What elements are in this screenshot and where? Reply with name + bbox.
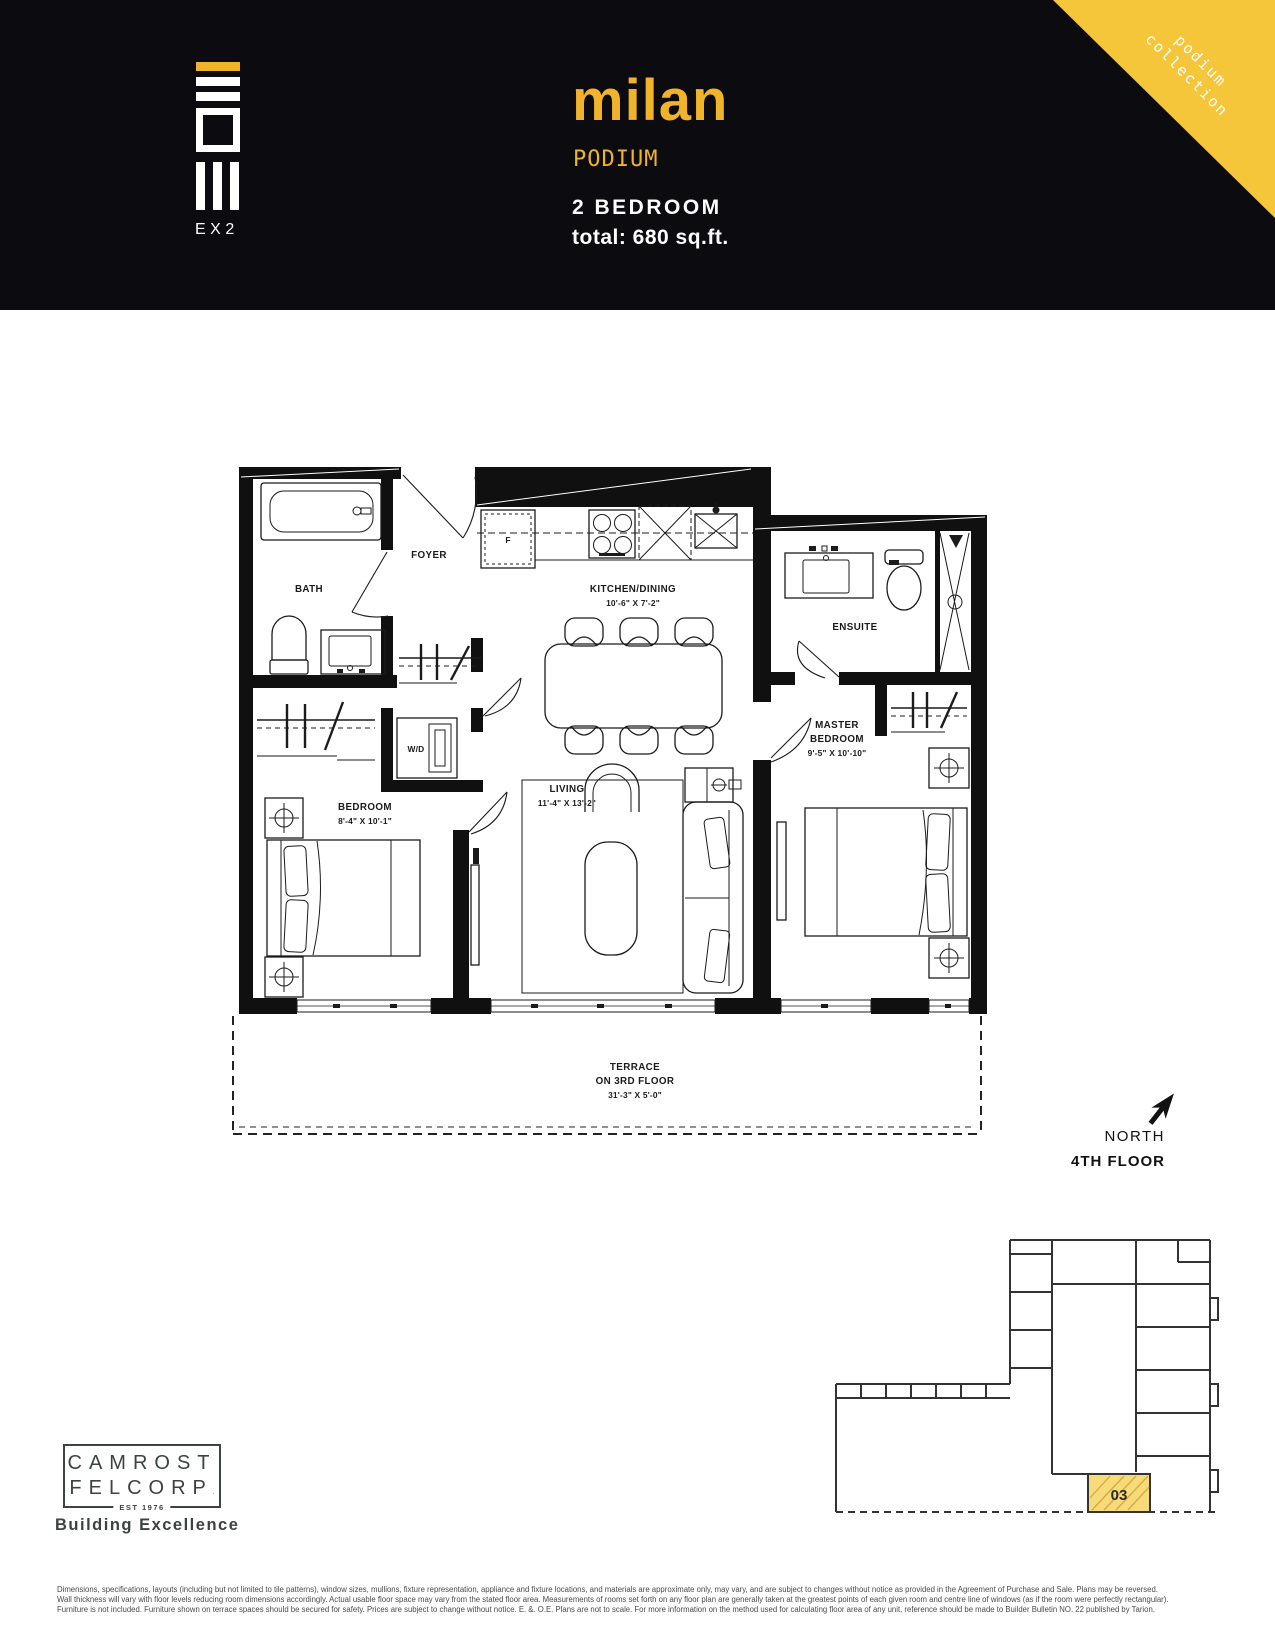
total-area-label: total: 680 sq.ft.	[572, 226, 729, 250]
kitchen-dims: 10'-6" X 7'-2"	[606, 598, 660, 608]
living-furniture	[473, 764, 743, 993]
living-tv	[473, 848, 479, 864]
disclaimer: Dimensions, specifications, layouts (inc…	[57, 1585, 1169, 1615]
dining-set	[545, 618, 722, 754]
bedroom-furniture	[265, 798, 479, 997]
kitchen-label: KITCHEN/DINING	[590, 584, 676, 595]
ensuite-label: ENSUITE	[832, 622, 877, 633]
terrace-dims: 31'-3" X 5'-0"	[608, 1090, 662, 1100]
sofa	[683, 802, 743, 993]
developer-name-2: FELCORP.	[65, 1477, 219, 1500]
north-arrow-icon	[1136, 1084, 1186, 1134]
keyplan: 03	[788, 1232, 1233, 1524]
floor-plan: BATH FOYER KITCHEN/DINING 10'-6" X 7'-2"…	[225, 420, 1005, 1180]
ribbon-line-1: podium	[1135, 0, 1267, 127]
hall-closet	[399, 644, 481, 683]
ensuite-fixtures	[785, 533, 969, 670]
ensuite-toilet	[885, 550, 923, 610]
developer-name-1: CAMROST	[65, 1452, 219, 1475]
north-label: NORTH	[1040, 1128, 1165, 1145]
page-title: milan	[572, 72, 729, 130]
master-nightstand	[929, 748, 969, 978]
terrace-label-1: TERRACE	[610, 1062, 660, 1073]
ribbon-line-2: collection	[1121, 9, 1253, 141]
dining-chairs	[565, 618, 713, 754]
stove	[589, 510, 635, 558]
bathtub	[261, 483, 381, 540]
collection-label: PODIUM	[573, 147, 658, 172]
foyer-label: FOYER	[411, 550, 447, 561]
disclaimer-line-1: Dimensions, specifications, layouts (inc…	[57, 1585, 1169, 1595]
living-label: LIVING	[549, 784, 584, 795]
logo-mark-text: EX2	[195, 221, 239, 238]
corner-ribbon: podium collection	[1053, 0, 1275, 218]
bath-vanity-sink	[321, 630, 385, 674]
side-table-lamp	[685, 768, 741, 802]
ex2-logo-icon: EX2	[186, 62, 256, 247]
window-wall	[297, 1000, 969, 1012]
developer-established: EST 1976	[113, 1503, 170, 1512]
wd-label: W/D	[408, 744, 425, 754]
bedroom-label: BEDROOM	[338, 802, 392, 813]
bath-label: BATH	[295, 584, 323, 595]
bedroom-dims: 8'-4" X 10'-1"	[338, 816, 392, 826]
ribbon-label: podium collection	[1121, 0, 1267, 141]
bath-fixtures	[261, 483, 385, 674]
shower	[940, 533, 969, 670]
bedroom-nightstand	[265, 798, 303, 997]
keyplan-unit-number: 03	[1111, 1487, 1128, 1504]
bedroom-count-label: 2 BEDROOM	[572, 196, 722, 220]
developer-tagline: Building Excellence	[55, 1516, 230, 1535]
master-furniture	[777, 748, 969, 978]
master-label-2: BEDROOM	[810, 734, 864, 745]
master-bed	[805, 808, 967, 936]
fridge-label: F	[505, 535, 510, 545]
master-dims: 9'-5" X 10'-10"	[808, 748, 867, 758]
washer-dryer	[397, 718, 457, 778]
bedroom-bed	[267, 840, 420, 956]
disclaimer-line-2: Wall thickness will vary with floor leve…	[57, 1595, 1169, 1605]
disclaimer-line-3: Furniture is not included. Furniture sho…	[57, 1605, 1169, 1615]
living-dims: 11'-4" X 13'-2"	[538, 798, 596, 808]
terrace-label-2: ON 3RD FLOOR	[596, 1076, 675, 1087]
floor-label: 4TH FLOOR	[1000, 1153, 1165, 1170]
master-closet	[891, 692, 967, 732]
bedroom-closet	[257, 702, 375, 760]
kitchen-fixtures	[477, 502, 753, 568]
terrace-outline	[233, 1016, 981, 1134]
header-banner: EX2 milan PODIUM 2 BEDROOM total: 680 sq…	[0, 0, 1275, 310]
kitchen-sink	[695, 502, 737, 548]
bedroom-tv	[471, 865, 479, 965]
coffee-table	[585, 842, 637, 955]
toilet	[270, 616, 308, 674]
dining-table	[545, 644, 722, 728]
walls	[239, 467, 987, 1014]
keyplan-outline	[836, 1240, 1218, 1512]
rug	[522, 780, 683, 993]
keyplan-unit-03: 03	[1088, 1474, 1150, 1512]
ensuite-vanity-sink	[785, 546, 873, 598]
master-label-1: MASTER	[815, 720, 859, 731]
developer-logo: CAMROST FELCORP. EST 1976	[63, 1444, 221, 1508]
master-tv	[777, 822, 786, 920]
